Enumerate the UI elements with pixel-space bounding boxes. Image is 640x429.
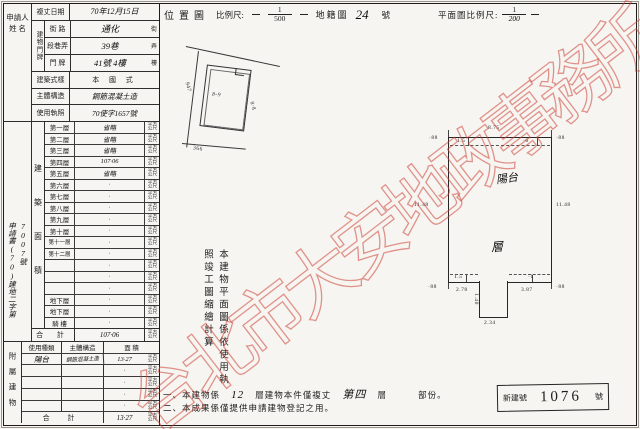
corner-tick-tl (448, 130, 449, 137)
dim-top: 8.75 (488, 125, 500, 131)
floor-label: 地下層 (45, 306, 75, 317)
plan-tick-bottom-left (466, 275, 467, 282)
floor-value: · (75, 295, 145, 306)
area-unit: 平方公尺 (146, 319, 157, 328)
cadastral-map-label: 地籍圖 (316, 8, 349, 21)
floor-value: · (75, 180, 145, 191)
annex-area: · (104, 365, 145, 376)
area-unit-cell: 平方公尺 (145, 214, 159, 225)
area-unit: 平方公尺 (146, 250, 157, 259)
floor-label: 第十層 (45, 226, 75, 237)
floor-row-14: ·平方公尺 (45, 272, 159, 284)
area-unit: 平方公尺 (146, 227, 157, 236)
sketch-label-bottom: 366 (193, 145, 203, 152)
license-label: 使用執照 (32, 105, 70, 121)
area-unit: 平方公尺 (146, 307, 157, 316)
dim-notch-depth: 1.40 (473, 293, 479, 305)
floor-row-18: 騎 樓·平方公尺 (45, 318, 159, 329)
land-office-watermark: 台北市大安地政事務所 (103, 0, 640, 429)
floor-row-2: 第二層省略平方公尺 (45, 134, 159, 146)
sketch-label-inside: 8-9 (212, 91, 222, 98)
dim-corner-tr: ·88 (556, 135, 565, 141)
area-unit-cell: 平方公尺 (145, 318, 159, 329)
dim-corner-tl: ·88 (429, 135, 438, 141)
stamp-number: 1076 (540, 388, 582, 406)
floor-label: 第九層 (45, 214, 75, 225)
area-unit: 平方公尺 (146, 378, 157, 387)
floor-value: · (75, 260, 145, 271)
floor-label: 第七層 (45, 191, 75, 202)
note-line-2: 二、本成果係僅提供申請建物登記之用。 (163, 402, 334, 414)
area-unit-cell: 平方公尺 (145, 272, 159, 283)
floor-total-label: 合 計 (32, 329, 75, 341)
plan-bottom-notch (479, 281, 508, 318)
floor-row-7: 第七層·平方公尺 (45, 191, 159, 203)
floor-total-value: 107·06 (75, 329, 145, 341)
annex-header-structure: 主體構造 (62, 342, 104, 353)
floor-value: 省略 (75, 122, 145, 133)
annex-total-label: 合 計 (22, 412, 104, 423)
floor-label: 第三層 (45, 145, 75, 156)
floor-value: · (75, 237, 145, 248)
floor-label: 騎 樓 (45, 318, 75, 329)
area-unit-cell: 平方公尺 (145, 180, 159, 191)
area-unit: 平方公尺 (146, 367, 157, 376)
annex-row-2: · 平方公尺 (22, 365, 159, 377)
note1-prefix: 一、本建物係 (163, 390, 220, 400)
floor-label: 第四層 (45, 157, 75, 168)
area-unit: 平方公尺 (146, 215, 157, 224)
license-row: 使用執照 70使字1657號 (32, 105, 159, 121)
scanned-survey-document: 申請人 姓 名 複丈日期 70年12月15日 建物門牌 街 路 通化 街 (0, 0, 640, 429)
area-unit-cell: 平方公尺 (145, 354, 159, 365)
annex-header-row: 使用種類 主體構造 面 積 (22, 342, 159, 354)
area-unit-cell: 平方公尺 (145, 249, 159, 260)
corner-tick-br (551, 283, 552, 289)
annex-area: · (104, 377, 145, 388)
area-unit: 平方公尺 (146, 413, 157, 422)
area-unit-cell: 平方公尺 (145, 295, 159, 306)
area-unit-cell: 平方公尺 (145, 412, 159, 423)
sketch-label-left: 947 (184, 82, 192, 93)
area-unit: 平方公尺 (146, 146, 157, 155)
floor-value: · (75, 283, 145, 294)
floor-value: 107·06 (75, 157, 145, 168)
lot-outline (199, 64, 251, 131)
scale-dash-left (252, 14, 260, 15)
floor-value: · (75, 226, 145, 237)
annex-row-4: · 平方公尺 (22, 389, 159, 401)
door-plate-group: 建物門牌 街 路 通化 街 段巷弄 39巷 弄 門 (32, 21, 159, 72)
cadastral-number-suffix: 號 (382, 9, 391, 21)
street-line-top (186, 46, 280, 67)
area-unit-cell: 平方公尺 (145, 157, 159, 168)
note1-mid: 層建物本件僅複丈 (255, 390, 331, 400)
note1-floor-count: 12 (231, 389, 244, 401)
plan-annotation-balcony: 陽台 (495, 169, 519, 188)
street-line-bottom (182, 143, 246, 150)
floor-label: 第一層 (45, 122, 75, 133)
plan-tick-top-right (537, 138, 538, 146)
corner-tick-tr (551, 130, 552, 137)
street-label: 街 路 (45, 21, 71, 37)
area-unit: 平方公尺 (146, 238, 157, 247)
lot-top-notch (235, 68, 245, 76)
floor-value: · (75, 203, 145, 214)
floor-value: · (75, 249, 145, 260)
area-unit-cell: 平方公尺 (145, 122, 159, 133)
area-unit-cell: 平方公尺 (145, 306, 159, 317)
application-number: 申請書(70)建地二字第7007號 (7, 222, 29, 341)
balcony-dashed-line-top (450, 145, 550, 146)
scale-label: 比例尺: (216, 9, 244, 21)
floor-value: · (75, 272, 145, 283)
corner-tick-bl (448, 283, 449, 289)
annex-use (22, 365, 62, 376)
area-unit: 平方公尺 (146, 181, 157, 190)
area-unit: 平方公尺 (146, 123, 157, 132)
annex-structure (62, 365, 104, 376)
floor-row-9: 第九層·平方公尺 (45, 214, 159, 226)
area-unit-cell: 平方公尺 (145, 134, 159, 145)
area-unit: 平方公尺 (146, 402, 157, 411)
annex-use: 陽台 (22, 354, 62, 365)
floor-label (45, 283, 75, 294)
floor-label: 第五層 (45, 168, 75, 179)
floor-row-1: 第一層省略平方公尺 (45, 122, 159, 134)
license-value: 70使字1657號 (70, 105, 159, 121)
plan-source-vertical-note: 本建物平面圖係依使用執照竣工圖縮繪計算 (199, 249, 229, 389)
area-unit-cell: 平方公尺 (145, 168, 159, 179)
plan-scale-header: 平面圖比例尺: 1 200 (438, 6, 540, 23)
area-unit-cell: 平方公尺 (145, 203, 159, 214)
annex-area: · (104, 389, 145, 400)
annex-header-use: 使用種類 (22, 342, 62, 353)
floor-total-row: 合 計 107·06 平方公尺 (32, 328, 159, 341)
dim-bottom-left: 2.78 (456, 287, 468, 293)
floor-label: 第十一層 (45, 237, 75, 248)
floor-label (45, 272, 75, 283)
area-unit-cell: 平方公尺 (145, 283, 159, 294)
note1-suffix: 部份。 (418, 390, 447, 400)
location-map-title: 位置圖 (164, 7, 209, 22)
dim-corner-bl: ·88 (428, 284, 437, 290)
annex-use (22, 377, 62, 388)
floor-row-11: 第十一層·平方公尺 (45, 237, 159, 249)
floor-row-5: 第五層省略平方公尺 (45, 168, 159, 180)
door-number-value: 41號 4樓 (71, 55, 149, 71)
area-section-side-label: 建築面積 (32, 122, 45, 328)
floor-label: 第十二層 (45, 249, 75, 260)
structure-label: 主體構造 (32, 89, 70, 105)
annex-use (22, 389, 62, 400)
floor-value: 省略 (75, 168, 145, 179)
note1-surveyed-floor: 第四 (342, 389, 366, 401)
area-unit: 平方公尺 (146, 273, 157, 282)
door-number-label: 門 牌 (45, 55, 71, 71)
area-unit-cell: 平方公尺 (145, 401, 159, 412)
floor-label: 第六層 (45, 180, 75, 191)
section-lane-value: 39巷 (71, 38, 149, 54)
annex-structure (62, 389, 104, 400)
floor-row-15: ·平方公尺 (45, 283, 159, 295)
structure-row: 主體構造 鋼筋混凝土造 (32, 89, 159, 106)
section-lane-row: 段巷弄 39巷 弄 (45, 38, 159, 55)
survey-date-label: 複丈日期 (32, 4, 70, 20)
area-unit-cell: 平方公尺 (145, 329, 159, 341)
street-suffix: 街 (149, 21, 159, 37)
door-number-row: 門 牌 41號 4樓 樓 (45, 55, 159, 71)
area-unit-cell: 平方公尺 (145, 237, 159, 248)
annex-area: 13·27 (104, 354, 145, 365)
area-unit: 平方公尺 (146, 135, 157, 144)
dim-strip-bottom-right: ·1 (528, 274, 534, 280)
area-unit: 平方公尺 (146, 158, 157, 167)
area-unit: 平方公尺 (146, 204, 157, 213)
floor-value: · (75, 191, 145, 202)
plan-scale-fraction: 1 200 (502, 6, 526, 23)
annex-row-1: 陽台 鋼筋混凝土造 13·27 平方公尺 (22, 354, 159, 366)
area-unit-cell: 平方公尺 (145, 191, 159, 202)
floor-value: · (75, 214, 145, 225)
area-unit-cell: 平方公尺 (145, 377, 159, 388)
floor-value: · (75, 306, 145, 317)
new-building-number-stamp: 新建號 1076 號 (497, 383, 609, 412)
plan-scale-label: 平面圖比例尺: (438, 9, 498, 21)
floor-row-6: 第六層·平方公尺 (45, 180, 159, 192)
applicant-label-line2: 姓 名 (9, 23, 26, 34)
dim-right: 11.48 (556, 202, 571, 208)
structure-value: 鋼筋混凝土造 (70, 89, 159, 105)
floor-row-13: ·平方公尺 (45, 260, 159, 272)
annex-building-block: 附屬建物 使用種類 主體構造 面 積 陽台 鋼筋混凝土造 13·27 平方公尺 … (4, 342, 159, 423)
area-unit-cell: 平方公尺 (145, 365, 159, 376)
area-unit: 平方公尺 (146, 169, 157, 178)
area-unit: 平方公尺 (146, 331, 157, 340)
floor-label: 第八層 (45, 203, 75, 214)
applicant-label-line1: 申請人 (6, 12, 29, 23)
scale-denominator: 500 (274, 15, 285, 23)
annex-row-5: · 平方公尺 (22, 401, 159, 413)
area-unit: 平方公尺 (146, 355, 157, 364)
floor-area-block: 申請書(70)建地二字第7007號 建築面積 第一層省略平方公尺 第二層省略平方… (4, 122, 159, 342)
annex-total-row: 合 計 13·27 平方公尺 (22, 412, 159, 423)
annex-side-label: 附屬建物 (4, 342, 22, 423)
door-plate-group-label: 建物門牌 (32, 21, 45, 71)
dim-corner-br: ·88 (556, 284, 565, 290)
plan-annotation-floor: 層 (490, 238, 503, 256)
floor-rows: 第一層省略平方公尺 第二層省略平方公尺 第三層省略平方公尺 第四層107·06平… (45, 122, 159, 328)
plan-main-outline (448, 137, 552, 283)
building-style-value: 本 國 式 (70, 72, 159, 88)
scale-dash-right (300, 14, 308, 15)
annex-row-3: · 平方公尺 (22, 377, 159, 389)
floor-label: 第二層 (45, 134, 75, 145)
floor-value: 省略 (75, 134, 145, 145)
area-unit: 平方公尺 (146, 284, 157, 293)
area-unit-cell: 平方公尺 (145, 389, 159, 400)
dim-bottom-right: 3.87 (521, 287, 533, 293)
area-unit: 平方公尺 (146, 296, 157, 305)
annex-use (22, 401, 62, 412)
floor-value: · (75, 318, 145, 329)
annex-structure (62, 401, 104, 412)
floor-row-16: 地下層·平方公尺 (45, 295, 159, 307)
applicant-name-cell: 申請人 姓 名 (4, 4, 32, 121)
section-lane-suffix: 弄 (149, 38, 159, 54)
area-unit: 平方公尺 (146, 261, 157, 270)
floor-row-8: 第八層·平方公尺 (45, 203, 159, 215)
building-info-table: 申請人 姓 名 複丈日期 70年12月15日 建物門牌 街 路 通化 街 (4, 4, 160, 425)
dim-left: 11.48 (414, 202, 429, 208)
building-style-row: 建築式樣 本 國 式 (32, 72, 159, 89)
floor-row-12: 第十二層·平方公尺 (45, 249, 159, 261)
floor-value: 省略 (75, 145, 145, 156)
dim-strip-bottom-left: 1.5 (454, 274, 462, 280)
survey-date-value: 70年12月15日 (70, 4, 159, 20)
floor-row-4: 第四層107·06平方公尺 (45, 157, 159, 169)
area-unit: 平方公尺 (146, 192, 157, 201)
door-number-suffix: 樓 (149, 55, 159, 71)
annex-area: · (104, 401, 145, 412)
street-value: 通化 (71, 21, 149, 37)
building-style-label: 建築式樣 (32, 72, 70, 88)
area-unit-cell: 平方公尺 (145, 260, 159, 271)
plan-tick-top-left (468, 138, 469, 146)
floor-row-17: 地下層·平方公尺 (45, 306, 159, 318)
area-unit: 平方公尺 (146, 390, 157, 399)
location-scale-fraction: 1 500 (268, 6, 292, 23)
header-block: 申請人 姓 名 複丈日期 70年12月15日 建物門牌 街 路 通化 街 (4, 4, 159, 122)
street-line-left (186, 51, 199, 147)
section-lane-label: 段巷弄 (45, 38, 71, 54)
location-map-header: 位置圖 比例尺: 1 500 地籍圖 24 號 (164, 6, 390, 23)
lot-inner-line (203, 68, 250, 129)
application-number-cell: 申請書(70)建地二字第7007號 (4, 122, 32, 341)
street-row: 街 路 通化 街 (45, 21, 159, 38)
area-unit-cell: 平方公尺 (145, 226, 159, 237)
plan-scale-denominator: 200 (509, 15, 520, 23)
cadastral-map-number: 24 (356, 7, 369, 23)
floor-row-10: 第十層·平方公尺 (45, 226, 159, 238)
note1-floor-unit: 層 (378, 390, 388, 400)
survey-date-row: 複丈日期 70年12月15日 (32, 4, 159, 21)
dim-strip-top-left: 1.5 (457, 138, 465, 144)
floor-row-3: 第三層省略平方公尺 (45, 145, 159, 157)
sketch-label-right: 8·8 (248, 101, 256, 111)
dim-strip-top-right: ·6 (523, 138, 529, 144)
annex-structure (62, 377, 104, 388)
annex-structure: 鋼筋混凝土造 (62, 353, 105, 366)
floor-label: 地下層 (45, 295, 75, 306)
annex-total-value: 13·27 (104, 412, 145, 423)
plan-scale-dash (531, 14, 539, 15)
note-line-1: 一、本建物係 12 層建物本件僅複丈 第四 層 部份。 (163, 386, 447, 402)
dim-notch-width: 2.34 (484, 320, 496, 326)
annex-header-area: 面 積 (104, 342, 159, 353)
area-unit-cell: 平方公尺 (145, 145, 159, 156)
floor-label (45, 260, 75, 271)
stamp-label: 新建號 (503, 392, 527, 403)
stamp-suffix: 號 (595, 391, 603, 402)
